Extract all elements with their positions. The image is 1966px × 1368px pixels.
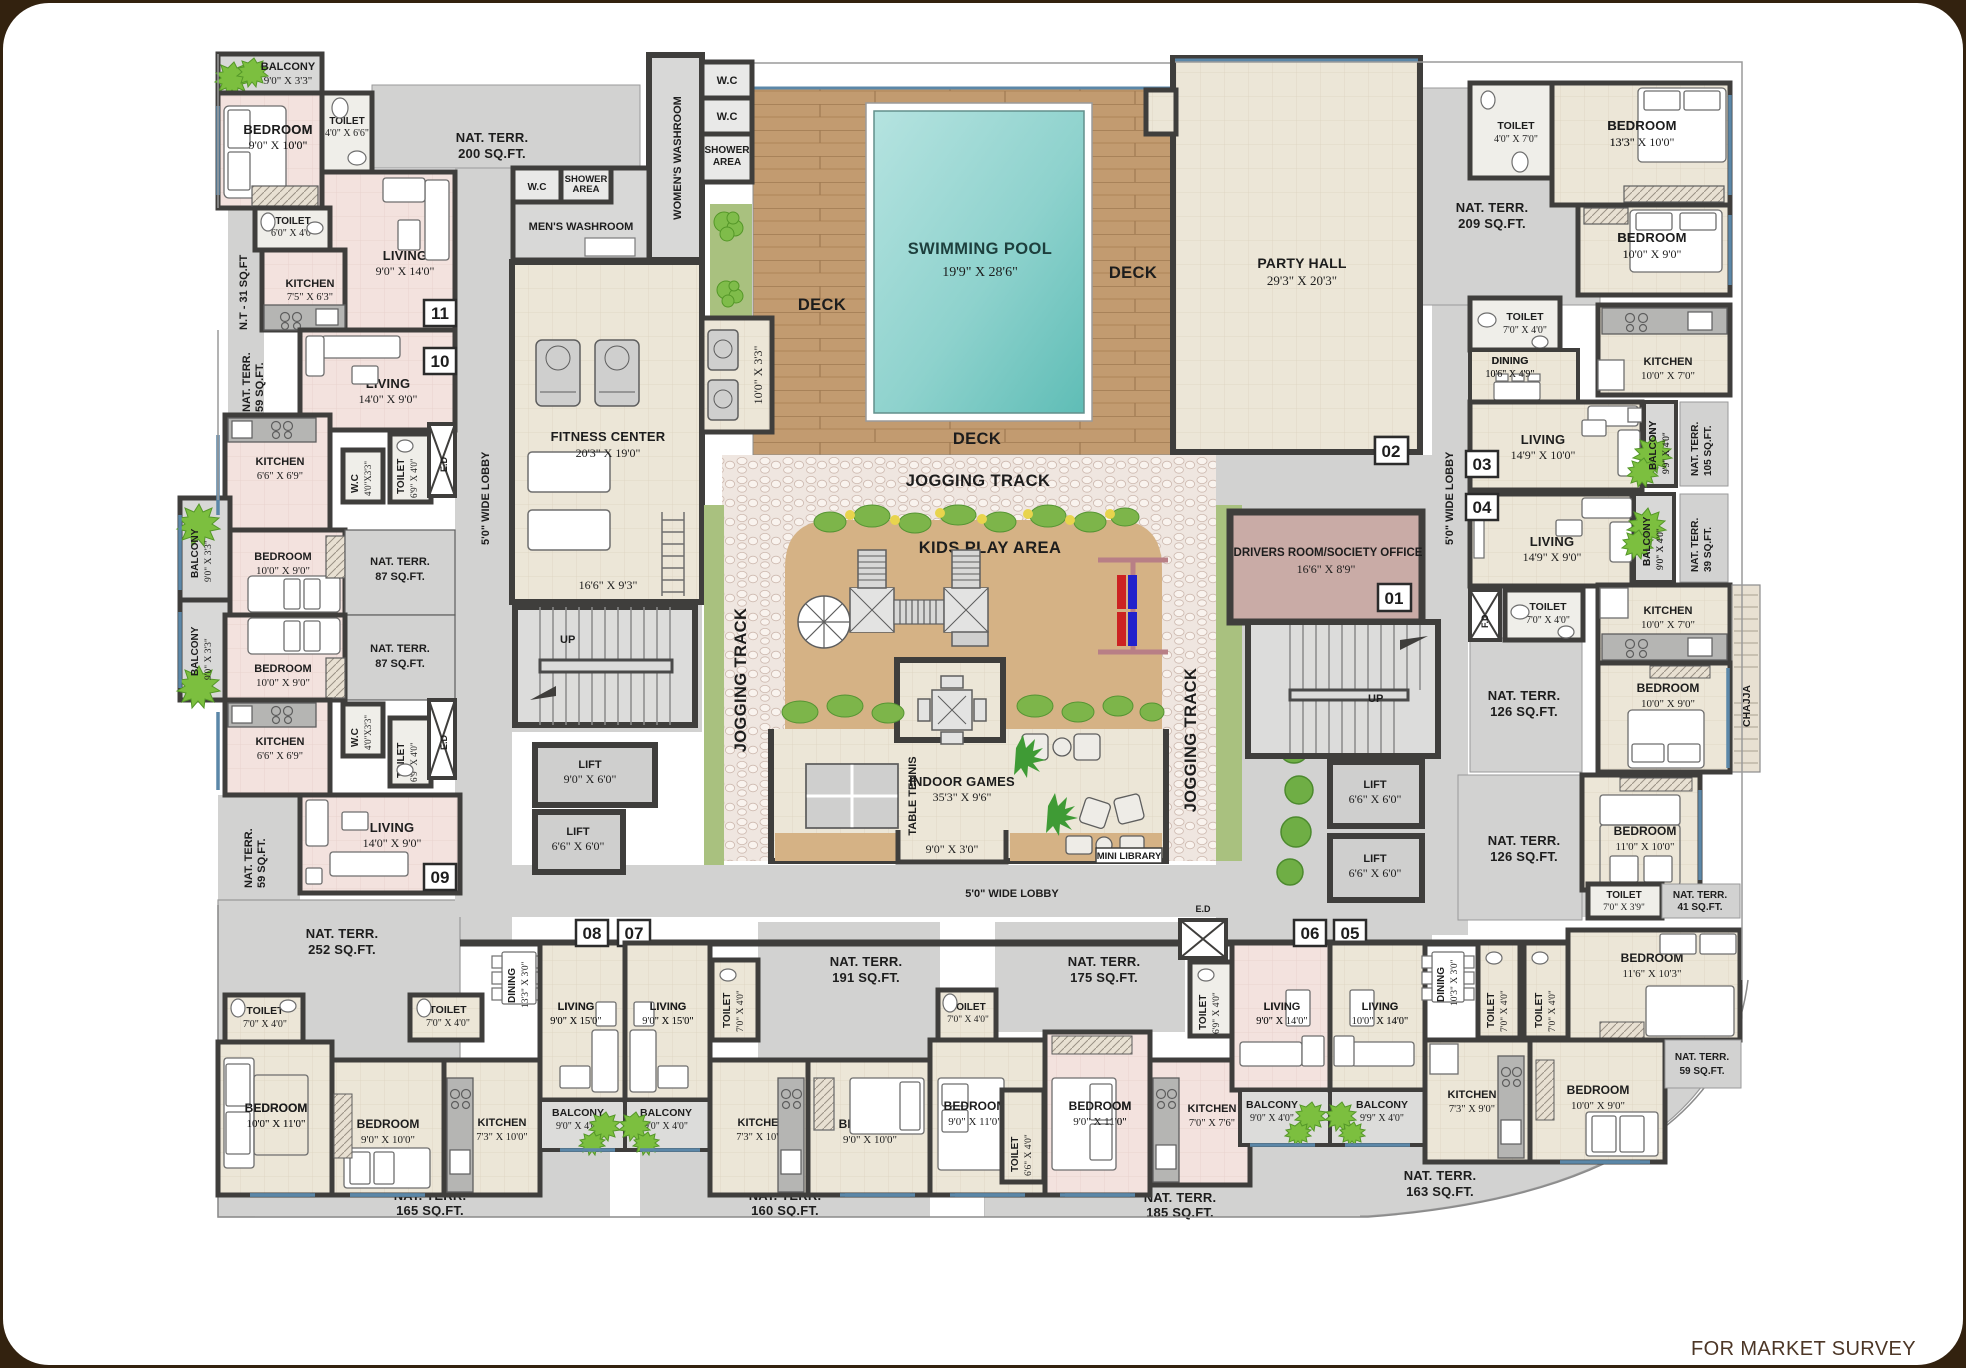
svg-text:NAT. TERR.: NAT. TERR. <box>243 828 255 888</box>
svg-text:9'0" X 15'0": 9'0" X 15'0" <box>550 1016 601 1027</box>
svg-text:87 SQ.FT.: 87 SQ.FT. <box>375 571 425 583</box>
svg-text:10'0" X 7'0": 10'0" X 7'0" <box>1641 619 1695 631</box>
svg-text:SHOWER: SHOWER <box>705 145 751 156</box>
svg-text:FITNESS CENTER: FITNESS CENTER <box>551 429 666 444</box>
svg-text:NAT. TERR.: NAT. TERR. <box>1488 833 1561 848</box>
svg-text:BEDROOM: BEDROOM <box>1614 824 1677 838</box>
svg-text:NAT. TERR.: NAT. TERR. <box>306 926 379 941</box>
svg-text:9'9" X 4'0": 9'9" X 4'0" <box>1360 1113 1404 1124</box>
svg-text:LIVING: LIVING <box>650 1001 687 1013</box>
svg-text:SWIMMING POOL: SWIMMING POOL <box>908 240 1053 258</box>
svg-text:9'0" X 4'0": 9'0" X 4'0" <box>1656 528 1666 570</box>
svg-text:NAT. TERR.: NAT. TERR. <box>1488 688 1561 703</box>
svg-text:W.C: W.C <box>350 474 361 493</box>
svg-text:BEDROOM: BEDROOM <box>243 122 312 137</box>
svg-text:9'0" X 10'0": 9'0" X 10'0" <box>843 1134 897 1146</box>
svg-text:LIVING: LIVING <box>1521 432 1566 447</box>
svg-text:10'0" X 9'0": 10'0" X 9'0" <box>1571 1100 1625 1112</box>
svg-text:7'0" X 4'0": 7'0" X 4'0" <box>736 990 746 1032</box>
svg-text:BEDROOM: BEDROOM <box>254 551 311 563</box>
svg-text:F.D: F.D <box>1480 614 1490 628</box>
svg-text:DECK: DECK <box>798 296 846 314</box>
svg-text:9'0" X 4'0": 9'0" X 4'0" <box>1250 1113 1294 1124</box>
svg-text:7'0" X 4'0": 7'0" X 4'0" <box>1526 615 1570 626</box>
svg-text:DECK: DECK <box>1109 264 1157 282</box>
svg-text:E.D: E.D <box>439 734 449 750</box>
svg-text:BALCONY: BALCONY <box>261 61 316 73</box>
svg-text:13'3" X 10'0": 13'3" X 10'0" <box>1610 135 1675 149</box>
svg-text:9'0" X 3'3": 9'0" X 3'3" <box>204 540 214 582</box>
svg-text:N.T - 31 SQ.FT: N.T - 31 SQ.FT <box>238 255 250 330</box>
svg-text:59 SQ.FT.: 59 SQ.FT. <box>256 838 268 888</box>
svg-text:9'0" X 11'0": 9'0" X 11'0" <box>1073 1116 1126 1128</box>
svg-text:CHAJJA: CHAJJA <box>1741 685 1753 727</box>
svg-text:163 SQ.FT.: 163 SQ.FT. <box>1406 1184 1474 1199</box>
svg-text:29'3" X 20'3": 29'3" X 20'3" <box>1267 273 1337 288</box>
svg-text:DECK: DECK <box>953 430 1001 448</box>
svg-text:10: 10 <box>431 352 450 371</box>
svg-text:9'0" X 3'0": 9'0" X 3'0" <box>926 842 979 856</box>
svg-text:W.C: W.C <box>717 111 738 123</box>
svg-text:59 SQ.FT.: 59 SQ.FT. <box>254 362 266 412</box>
svg-text:BEDROOM: BEDROOM <box>357 1117 420 1131</box>
svg-text:TOILET: TOILET <box>246 1005 284 1017</box>
svg-text:07: 07 <box>625 924 644 943</box>
svg-text:6'6" X 6'9": 6'6" X 6'9" <box>257 751 303 762</box>
svg-text:KITCHEN: KITCHEN <box>256 456 305 468</box>
svg-text:MEN'S WASHROOM: MEN'S WASHROOM <box>529 221 634 233</box>
svg-text:10'3" X 3'0": 10'3" X 3'0" <box>1450 959 1460 1006</box>
svg-text:04: 04 <box>1473 498 1492 517</box>
svg-text:TOILET: TOILET <box>1534 993 1545 1028</box>
svg-text:10'0" X 9'0": 10'0" X 9'0" <box>1623 247 1682 261</box>
svg-text:10'0" X 14'0": 10'0" X 14'0" <box>1352 1016 1409 1027</box>
svg-text:03: 03 <box>1473 455 1492 474</box>
svg-text:KITCHEN: KITCHEN <box>478 1117 527 1129</box>
svg-text:13'3" X 3'0": 13'3" X 3'0" <box>521 961 531 1008</box>
svg-text:6'9" X 4'0": 6'9" X 4'0" <box>409 742 419 782</box>
svg-text:59 SQ.FT.: 59 SQ.FT. <box>1679 1066 1724 1077</box>
svg-text:08: 08 <box>583 924 602 943</box>
svg-text:BALCONY: BALCONY <box>640 1107 692 1119</box>
svg-text:6'9" X 4'0": 6'9" X 4'0" <box>409 458 419 498</box>
svg-text:BEDROOM: BEDROOM <box>1607 118 1676 133</box>
svg-text:7'0" X 4'0": 7'0" X 4'0" <box>426 1018 470 1029</box>
svg-text:9'0" X 15'0": 9'0" X 15'0" <box>642 1016 693 1027</box>
svg-text:TOILET: TOILET <box>1198 995 1209 1030</box>
svg-text:DINING: DINING <box>1436 967 1447 1002</box>
svg-text:W.C: W.C <box>528 182 547 193</box>
svg-text:BEDROOM: BEDROOM <box>245 1101 308 1115</box>
svg-text:TOILET: TOILET <box>722 993 733 1028</box>
svg-text:252 SQ.FT.: 252 SQ.FT. <box>308 942 376 957</box>
svg-text:7'0" X 4'0": 7'0" X 4'0" <box>947 1015 989 1025</box>
svg-text:7'0" X 3'9": 7'0" X 3'9" <box>1603 903 1645 913</box>
svg-text:9'0" X 10'0": 9'0" X 10'0" <box>361 1134 415 1146</box>
svg-text:126 SQ.FT.: 126 SQ.FT. <box>1490 849 1558 864</box>
svg-text:20'3" X 19'0": 20'3" X 19'0" <box>576 446 641 460</box>
svg-text:41 SQ.FT.: 41 SQ.FT. <box>1677 902 1722 913</box>
svg-text:6'6" X 4'0": 6'6" X 4'0" <box>1024 1134 1034 1176</box>
svg-text:11'0" X 10'0": 11'0" X 10'0" <box>1616 841 1675 853</box>
svg-text:DINING: DINING <box>507 968 518 1003</box>
svg-text:NAT. TERR.: NAT. TERR. <box>370 643 430 655</box>
svg-text:DRIVERS ROOM/SOCIETY OFFICE: DRIVERS ROOM/SOCIETY OFFICE <box>1234 547 1423 559</box>
svg-text:TABLE TENNIS: TABLE TENNIS <box>907 756 919 835</box>
svg-text:WOMEN'S WASHROOM: WOMEN'S WASHROOM <box>672 96 684 220</box>
svg-text:191 SQ.FT.: 191 SQ.FT. <box>832 970 900 985</box>
svg-text:11: 11 <box>431 304 449 323</box>
svg-text:9'0" X 10'0": 9'0" X 10'0" <box>249 138 308 152</box>
svg-text:BEDROOM: BEDROOM <box>1617 230 1686 245</box>
svg-text:W.C: W.C <box>717 75 738 87</box>
svg-text:UP: UP <box>560 634 575 646</box>
svg-text:NAT. TERR.: NAT. TERR. <box>1144 1190 1217 1205</box>
svg-text:UP: UP <box>1368 693 1383 705</box>
svg-text:E.D: E.D <box>439 456 449 472</box>
svg-text:16'6" X 9'3": 16'6" X 9'3" <box>579 578 638 592</box>
svg-text:6'6" X 6'0": 6'6" X 6'0" <box>1349 792 1402 806</box>
svg-text:NAT. TERR.: NAT. TERR. <box>1068 954 1141 969</box>
svg-text:DINING: DINING <box>1492 355 1529 367</box>
svg-text:AREA: AREA <box>713 157 741 168</box>
svg-text:KIDS PLAY AREA: KIDS PLAY AREA <box>919 539 1062 557</box>
svg-text:TOILET: TOILET <box>1529 601 1567 613</box>
svg-text:NAT. TERR.: NAT. TERR. <box>1673 890 1727 901</box>
svg-text:39 SQ.FT.: 39 SQ.FT. <box>1703 527 1714 572</box>
svg-text:10'0" X 9'0": 10'0" X 9'0" <box>256 677 310 689</box>
svg-text:7'0" X 4'0": 7'0" X 4'0" <box>1500 990 1510 1032</box>
svg-text:35'3" X 9'6": 35'3" X 9'6" <box>933 790 992 804</box>
svg-text:09: 09 <box>431 868 450 887</box>
svg-text:JOGGING TRACK: JOGGING TRACK <box>732 608 750 753</box>
svg-text:7'0" X 7'6": 7'0" X 7'6" <box>1189 1118 1235 1129</box>
svg-text:7'0" X 4'0": 7'0" X 4'0" <box>1503 325 1547 336</box>
svg-text:175 SQ.FT.: 175 SQ.FT. <box>1070 970 1138 985</box>
svg-text:10'0" X 11'0": 10'0" X 11'0" <box>247 1118 306 1130</box>
svg-text:10'0" X 9'0": 10'0" X 9'0" <box>1641 698 1695 710</box>
svg-text:NAT. TERR.: NAT. TERR. <box>830 954 903 969</box>
svg-text:10'0" X 9'0": 10'0" X 9'0" <box>256 565 310 577</box>
svg-text:9'0" X 14'0": 9'0" X 14'0" <box>1256 1016 1307 1027</box>
svg-text:6'9" X 4'0": 6'9" X 4'0" <box>1212 992 1222 1034</box>
svg-text:14'9" X 9'0": 14'9" X 9'0" <box>1523 550 1582 564</box>
svg-text:7'3" X 9'0": 7'3" X 9'0" <box>1449 1104 1495 1115</box>
svg-text:TOILET: TOILET <box>275 216 310 227</box>
svg-text:BEDROOM: BEDROOM <box>254 663 311 675</box>
svg-text:BALCONY: BALCONY <box>1356 1099 1408 1111</box>
svg-text:BEDROOM: BEDROOM <box>1069 1099 1132 1113</box>
svg-text:TOILET: TOILET <box>1606 890 1641 901</box>
svg-text:BALCONY: BALCONY <box>1246 1099 1298 1111</box>
svg-text:9'0" X 3'3": 9'0" X 3'3" <box>204 638 214 680</box>
svg-text:19'9" X 28'6": 19'9" X 28'6" <box>942 265 1018 280</box>
svg-text:TOILET: TOILET <box>1486 993 1497 1028</box>
svg-text:TOILET: TOILET <box>329 116 364 127</box>
svg-text:105 SQ.FT.: 105 SQ.FT. <box>1703 425 1714 476</box>
svg-text:JOGGING TRACK: JOGGING TRACK <box>1182 668 1200 813</box>
svg-text:NAT. TERR.: NAT. TERR. <box>370 556 430 568</box>
svg-text:FOR MARKET SURVEY: FOR MARKET SURVEY <box>1691 1338 1916 1360</box>
svg-text:7'0" X 4'0": 7'0" X 4'0" <box>1548 990 1558 1032</box>
svg-text:BEDROOM: BEDROOM <box>1637 681 1700 695</box>
svg-text:LIFT: LIFT <box>578 759 601 771</box>
svg-text:KITCHEN: KITCHEN <box>1448 1089 1497 1101</box>
svg-text:LIVING: LIVING <box>558 1001 595 1013</box>
svg-text:BALCONY: BALCONY <box>190 528 201 578</box>
svg-text:JOGGING TRACK: JOGGING TRACK <box>906 472 1051 490</box>
svg-text:KITCHEN: KITCHEN <box>1644 605 1693 617</box>
svg-text:14'0" X 9'0": 14'0" X 9'0" <box>359 392 418 406</box>
svg-text:209 SQ.FT.: 209 SQ.FT. <box>1458 216 1526 231</box>
svg-text:LIVING: LIVING <box>370 820 415 835</box>
svg-text:7'3" X 10'0": 7'3" X 10'0" <box>476 1132 527 1143</box>
svg-text:KITCHEN: KITCHEN <box>1188 1103 1237 1115</box>
svg-text:9'0" X 14'0": 9'0" X 14'0" <box>376 264 435 278</box>
svg-text:W.C: W.C <box>350 728 361 747</box>
svg-text:16'6" X 8'9": 16'6" X 8'9" <box>1297 562 1356 576</box>
svg-text:LIFT: LIFT <box>1363 853 1386 865</box>
svg-text:02: 02 <box>1382 442 1401 461</box>
svg-text:160 SQ.FT.: 160 SQ.FT. <box>751 1203 819 1218</box>
svg-text:11'6" X 10'3": 11'6" X 10'3" <box>1623 968 1682 980</box>
svg-text:NAT. TERR.: NAT. TERR. <box>456 130 529 145</box>
svg-text:TOILET: TOILET <box>1506 311 1544 323</box>
svg-text:6'6" X 6'0": 6'6" X 6'0" <box>1349 866 1402 880</box>
svg-text:5'0" WIDE LOBBY: 5'0" WIDE LOBBY <box>1444 451 1456 545</box>
svg-text:10'0" X 7'0": 10'0" X 7'0" <box>1641 370 1695 382</box>
svg-text:165 SQ.FT.: 165 SQ.FT. <box>396 1203 464 1218</box>
svg-text:87 SQ.FT.: 87 SQ.FT. <box>375 658 425 670</box>
svg-text:NAT. TERR.: NAT. TERR. <box>1690 518 1701 572</box>
svg-text:4'0" X 6'6": 4'0" X 6'6" <box>325 128 369 139</box>
svg-text:NAT. TERR.: NAT. TERR. <box>1690 422 1701 476</box>
svg-text:10'0" X 3'3": 10'0" X 3'3" <box>751 346 765 405</box>
svg-text:LIVING: LIVING <box>1264 1001 1301 1013</box>
svg-text:TOILET: TOILET <box>1497 120 1535 132</box>
svg-text:05: 05 <box>1341 924 1360 943</box>
svg-text:LIFT: LIFT <box>1363 779 1386 791</box>
svg-text:BALCONY: BALCONY <box>1642 516 1653 566</box>
svg-text:BEDROOM: BEDROOM <box>944 1099 1007 1113</box>
svg-text:NAT. TERR.: NAT. TERR. <box>1675 1052 1729 1063</box>
svg-text:TOILET: TOILET <box>1010 1137 1021 1172</box>
svg-text:4'0"X3'3": 4'0"X3'3" <box>363 461 373 496</box>
svg-text:NAT. TERR.: NAT. TERR. <box>241 352 253 412</box>
svg-text:7'5" X 6'3": 7'5" X 6'3" <box>287 292 333 303</box>
svg-text:10'6" X 4'9": 10'6" X 4'9" <box>1486 369 1535 380</box>
svg-text:9'0" X 11'0": 9'0" X 11'0" <box>948 1116 1001 1128</box>
svg-text:TOILET: TOILET <box>396 459 407 494</box>
svg-text:6'6" X 6'9": 6'6" X 6'9" <box>257 471 303 482</box>
svg-text:LIVING: LIVING <box>1362 1001 1399 1013</box>
svg-text:06: 06 <box>1301 924 1320 943</box>
svg-text:KITCHEN: KITCHEN <box>286 278 335 290</box>
svg-text:4'0" X 7'0": 4'0" X 7'0" <box>1494 134 1538 145</box>
svg-text:AREA: AREA <box>573 184 600 195</box>
svg-text:NAT. TERR.: NAT. TERR. <box>1456 200 1529 215</box>
svg-text:KITCHEN: KITCHEN <box>256 736 305 748</box>
svg-text:126 SQ.FT.: 126 SQ.FT. <box>1490 704 1558 719</box>
svg-text:200 SQ.FT.: 200 SQ.FT. <box>458 146 526 161</box>
svg-text:KITCHEN: KITCHEN <box>1644 356 1693 368</box>
svg-text:5'0" WIDE LOBBY: 5'0" WIDE LOBBY <box>965 888 1059 900</box>
svg-text:PARTY HALL: PARTY HALL <box>1257 255 1347 271</box>
svg-text:14'0" X 9'0": 14'0" X 9'0" <box>363 836 422 850</box>
svg-text:9'0" X 3'3": 9'0" X 3'3" <box>264 75 312 87</box>
svg-text:9'0" X 6'0": 9'0" X 6'0" <box>564 772 617 786</box>
svg-text:MINI LIBRARY: MINI LIBRARY <box>1097 851 1162 862</box>
svg-text:E.D: E.D <box>1195 904 1211 914</box>
svg-text:BALCONY: BALCONY <box>1648 420 1659 470</box>
svg-text:14'9" X 10'0": 14'9" X 10'0" <box>1511 448 1576 462</box>
svg-text:5'0" WIDE LOBBY: 5'0" WIDE LOBBY <box>480 451 492 545</box>
svg-text:INDOOR GAMES: INDOOR GAMES <box>909 774 1015 789</box>
svg-text:BEDROOM: BEDROOM <box>1567 1083 1630 1097</box>
svg-text:LIFT: LIFT <box>566 826 589 838</box>
svg-text:TOILET: TOILET <box>429 1004 467 1016</box>
svg-text:9'9" X 4'0": 9'9" X 4'0" <box>1662 432 1672 474</box>
svg-text:01: 01 <box>1385 589 1404 608</box>
svg-text:NAT. TERR.: NAT. TERR. <box>1404 1168 1477 1183</box>
svg-text:6'6" X 6'0": 6'6" X 6'0" <box>552 839 605 853</box>
svg-text:BALCONY: BALCONY <box>190 626 201 676</box>
svg-text:4'0"X3'3": 4'0"X3'3" <box>363 715 373 750</box>
svg-text:7'0" X 4'0": 7'0" X 4'0" <box>243 1019 287 1030</box>
